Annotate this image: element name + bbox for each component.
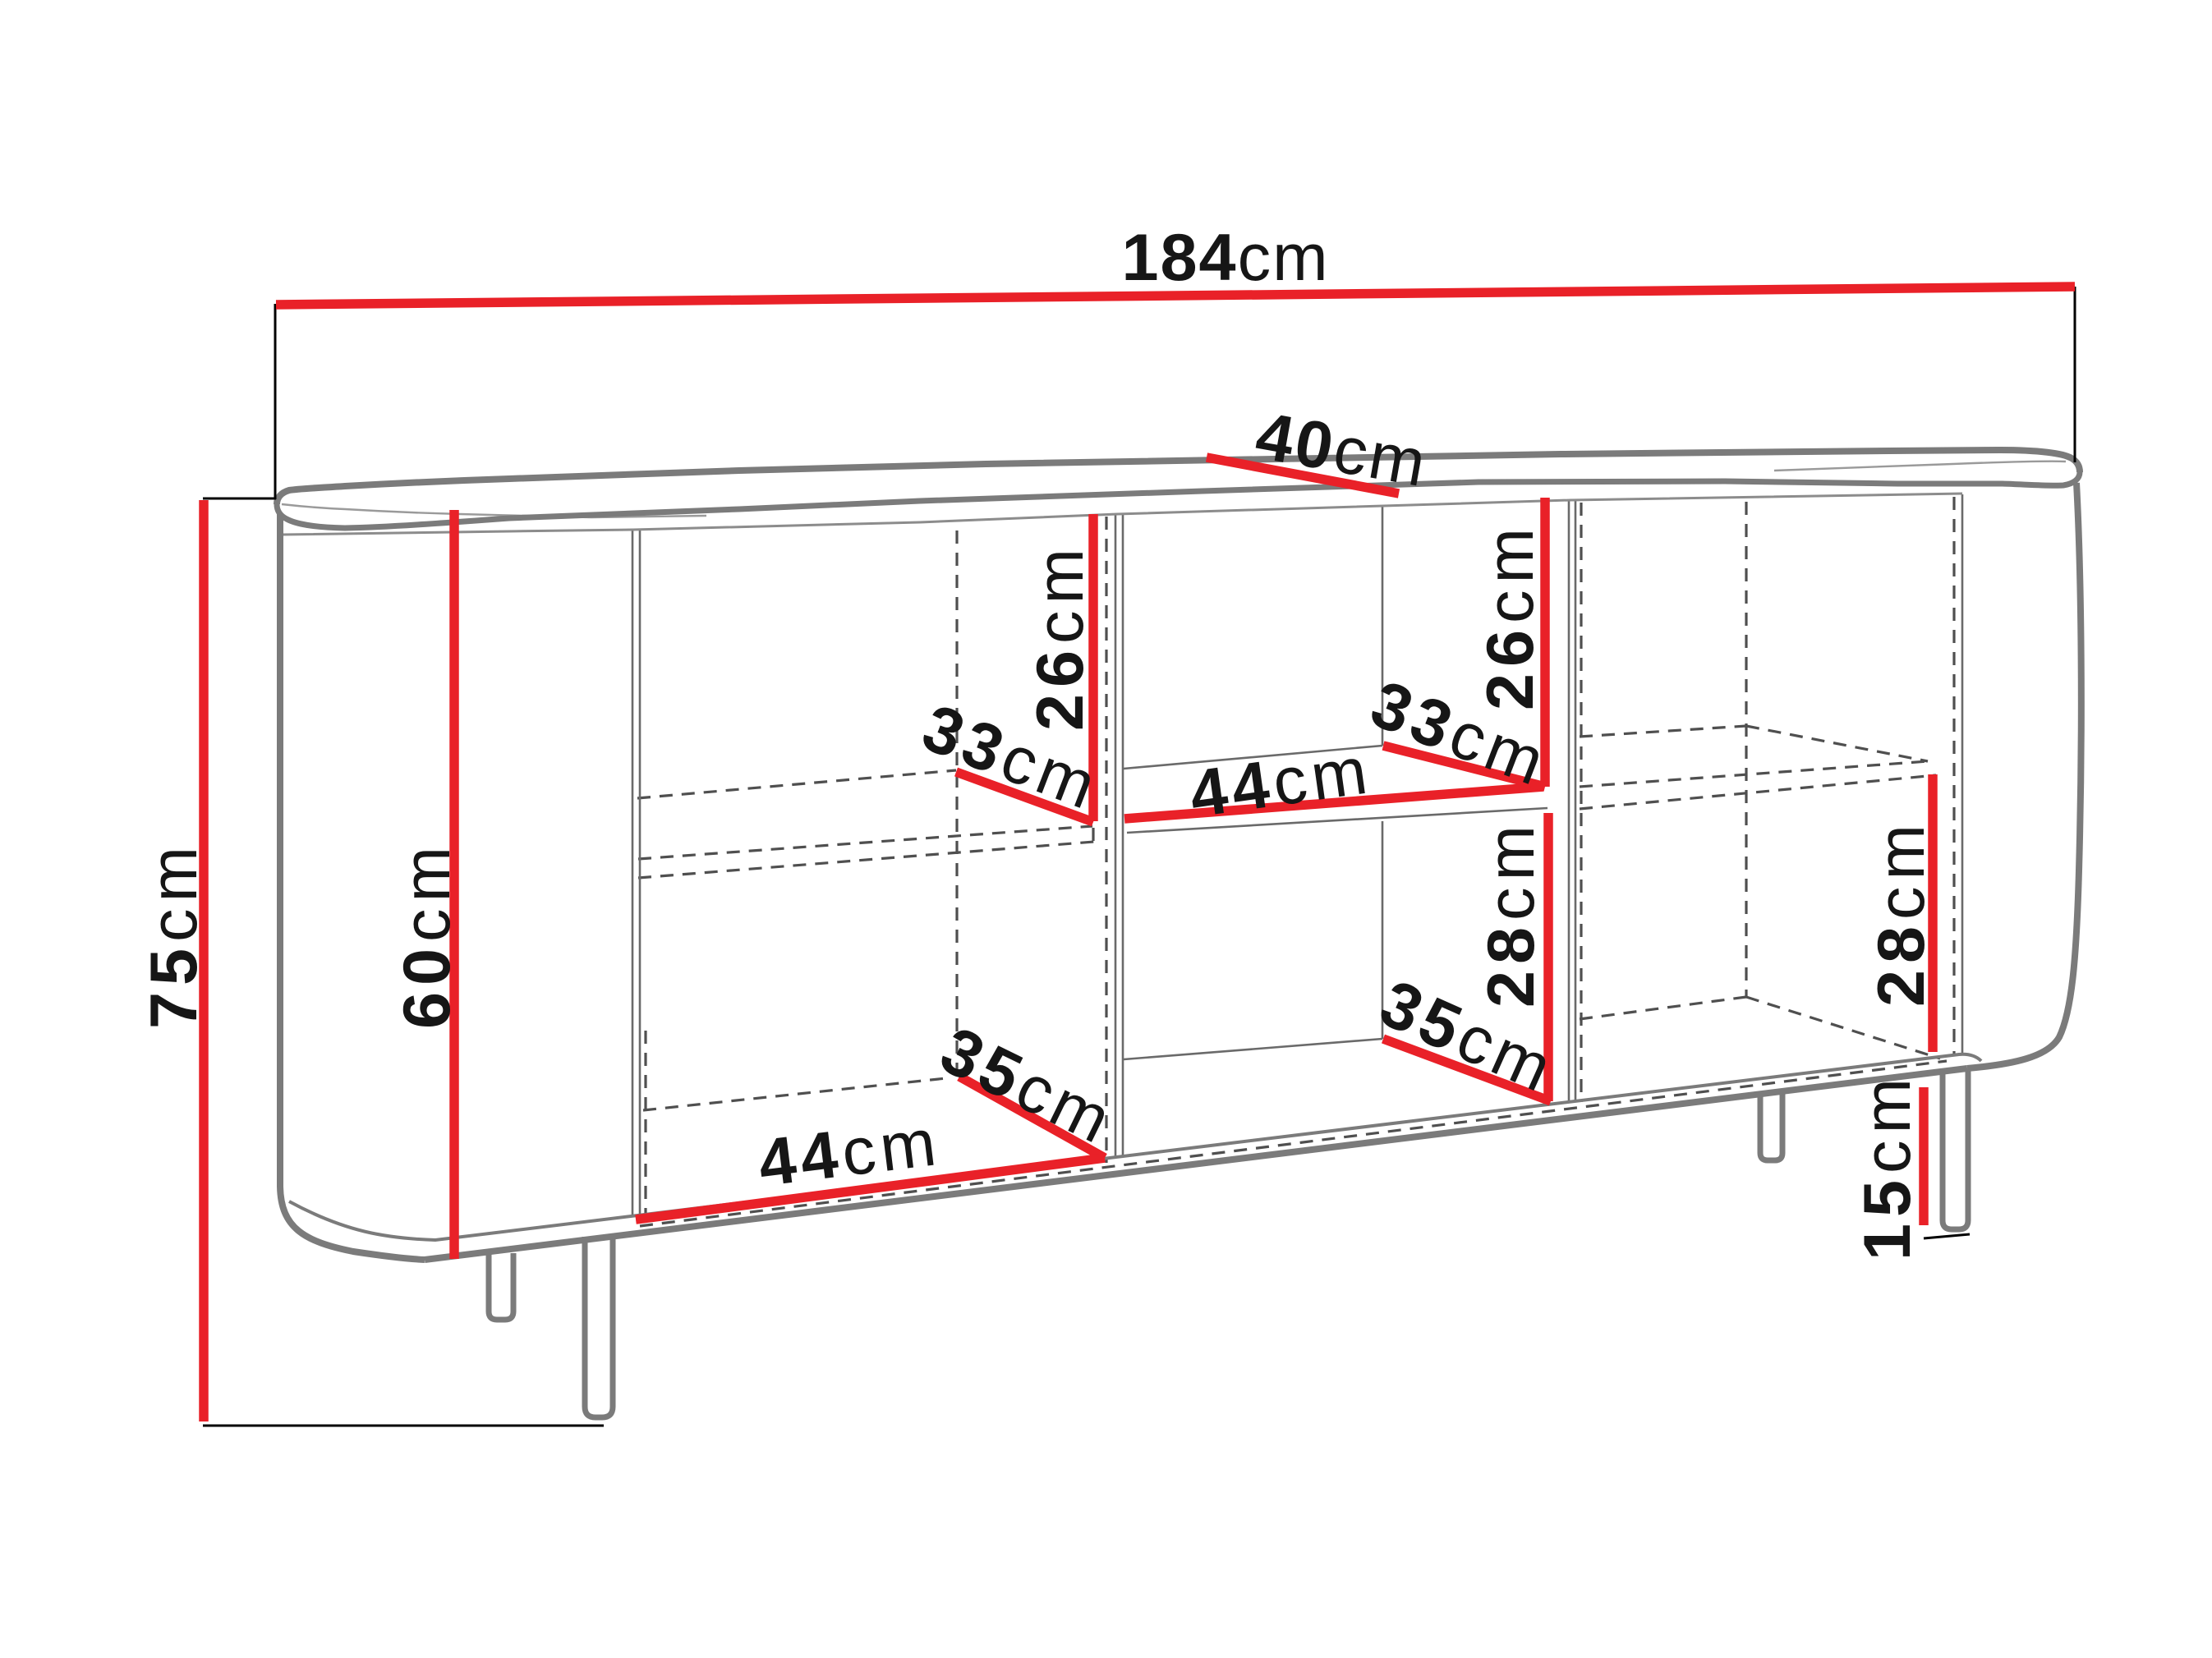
svg-text:184cm: 184cm xyxy=(1121,221,1329,295)
svg-text:26cm: 26cm xyxy=(1474,521,1547,710)
svg-text:28cm: 28cm xyxy=(1865,818,1938,1007)
svg-text:28cm: 28cm xyxy=(1474,819,1548,1008)
svg-text:26cm: 26cm xyxy=(1023,542,1097,731)
svg-text:75cm: 75cm xyxy=(137,840,211,1029)
svg-text:60cm: 60cm xyxy=(390,840,464,1029)
svg-text:15cm: 15cm xyxy=(1851,1072,1925,1261)
